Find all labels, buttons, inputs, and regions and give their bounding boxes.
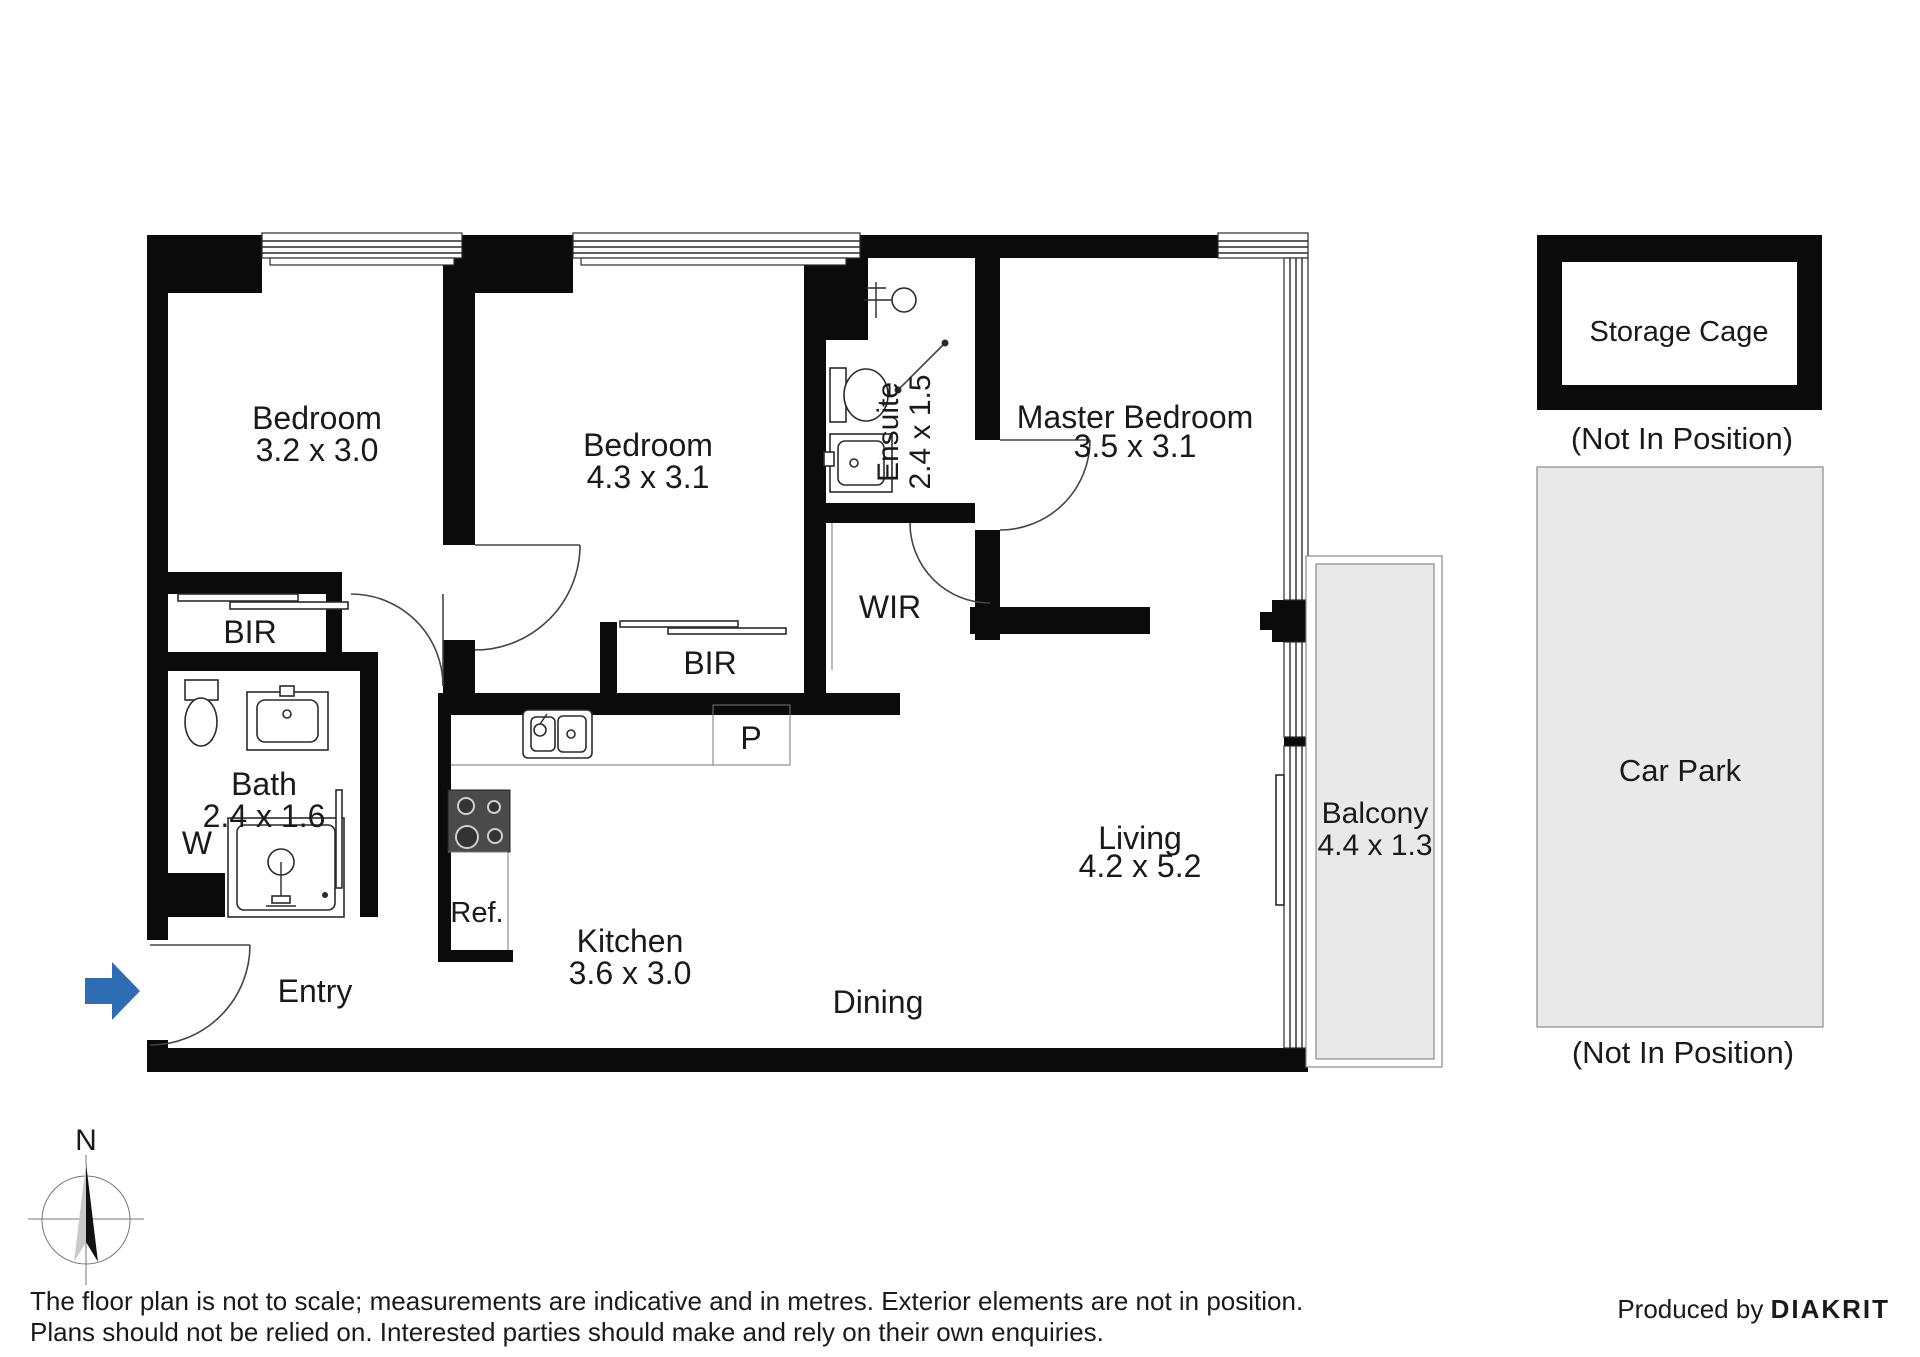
stove-icon — [448, 790, 510, 852]
bir1-shelf-icon — [178, 594, 348, 609]
balcony-sliding-door-icon — [1276, 746, 1308, 1048]
storage-cage-label: Storage Cage — [1590, 316, 1769, 348]
bath-dims: 2.4 x 1.6 — [203, 798, 326, 834]
living-dims: 4.2 x 5.2 — [1079, 848, 1202, 884]
ensuite-dims: 2.4 x 1.5 — [904, 374, 937, 489]
laundry-label: W — [182, 825, 213, 861]
bath-label: Bath — [231, 766, 297, 802]
bir2-shelf-icon — [620, 621, 786, 634]
bedroom1-dims: 3.2 x 3.0 — [256, 432, 379, 468]
pantry-label: P — [740, 720, 761, 756]
master-bedroom-dims: 3.5 x 3.1 — [1074, 428, 1197, 464]
disclaimer-line2: Plans should not be relied on. Intereste… — [30, 1317, 1104, 1347]
compass-icon — [28, 1155, 144, 1285]
disclaimer-line1: The floor plan is not to scale; measurem… — [30, 1286, 1303, 1316]
producer-credit: Produced by DIAKRIT — [1617, 1294, 1890, 1324]
floorplan-drawing: Bedroom 3.2 x 3.0 Bedroom 4.3 x 3.1 Mast… — [0, 0, 1920, 1357]
fridge-label: Ref. — [450, 897, 503, 929]
entry-arrow-icon — [85, 962, 140, 1020]
bedroom2-dims: 4.3 x 3.1 — [587, 459, 710, 495]
footer: The floor plan is not to scale; measurem… — [30, 1286, 1890, 1347]
bedroom2-label: Bedroom — [583, 427, 713, 463]
living-window-icon — [1284, 642, 1308, 737]
vanity-basin-icon — [247, 686, 328, 750]
balcony-label: Balcony — [1322, 797, 1429, 830]
bedroom2-window-icon — [573, 233, 860, 265]
storage-cage-note: (Not In Position) — [1571, 421, 1793, 456]
balcony-dims: 4.4 x 1.3 — [1317, 829, 1432, 862]
floorplan-page: Bedroom 3.2 x 3.0 Bedroom 4.3 x 3.1 Mast… — [0, 0, 1920, 1357]
car-park-note: (Not In Position) — [1572, 1035, 1794, 1070]
bedroom2-door-icon — [475, 545, 580, 650]
dining-label: Dining — [833, 984, 924, 1020]
ensuite-label: Ensuite — [872, 382, 905, 482]
ensuite-shower-icon — [864, 282, 916, 318]
credit-brand-logo: DIAKRIT — [1771, 1294, 1890, 1324]
toilet-icon — [185, 680, 218, 746]
wir-label: WIR — [859, 589, 921, 625]
credit-prefix: Produced by — [1617, 1294, 1770, 1324]
kitchen-label: Kitchen — [577, 923, 684, 959]
entry-door-icon — [150, 945, 250, 1045]
car-park-label: Car Park — [1619, 753, 1742, 788]
kitchen-sink-icon — [523, 710, 592, 758]
bedroom1-window-icon — [262, 233, 462, 265]
bir2-label: BIR — [683, 645, 736, 681]
bir1-label: BIR — [223, 614, 276, 650]
bedroom1-label: Bedroom — [252, 400, 382, 436]
car-park-box — [1537, 467, 1823, 1027]
entry-label: Entry — [278, 973, 353, 1009]
kitchen-dims: 3.6 x 3.0 — [569, 955, 692, 991]
compass-north-label: N — [75, 1124, 97, 1157]
windows — [262, 233, 1308, 1048]
